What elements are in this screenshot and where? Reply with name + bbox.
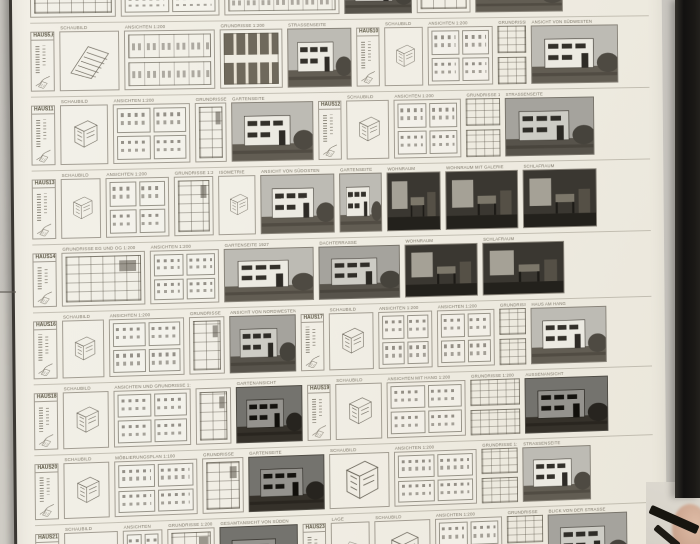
photo-content <box>523 446 590 501</box>
elevations-panel: ANSICHTEN 1:200 <box>435 510 503 544</box>
site-location-sketch-icon <box>359 70 377 84</box>
axonometric-house-icon <box>333 317 370 365</box>
axonometric-panel: SCHAUBILD <box>329 446 390 509</box>
architect-credit-text <box>323 112 335 143</box>
haus-word: HAUS <box>35 180 49 187</box>
elevation-drawing <box>431 30 459 54</box>
bw-photograph <box>339 173 382 233</box>
floor-plan-panel <box>416 0 470 13</box>
elevation-drawings <box>378 311 432 369</box>
elevation-drawing <box>172 0 216 12</box>
axonometric-drawing <box>63 462 109 519</box>
elevation-drawing <box>148 348 180 372</box>
architect-credit-text <box>361 38 373 69</box>
elevations-panel: ANSICHTEN 1:200 <box>427 20 493 85</box>
elevations-panel: ANSICHTEN 1:200 <box>393 93 461 159</box>
haus-number: 19 <box>324 385 329 392</box>
poster-row: HAUS 11 SCHAUBILD <box>31 87 650 166</box>
axonometric-house-icon <box>67 396 105 444</box>
floor-plan-panel: GRUNDRISSE <box>202 451 244 514</box>
photo-panel: GARTENSEITE <box>248 448 325 512</box>
floor-plan-drawing <box>466 98 501 126</box>
bw-photograph <box>445 170 518 230</box>
floor-plan-drawing <box>498 57 527 85</box>
haus-word: HAUS <box>35 254 49 261</box>
elevation-drawing <box>467 313 491 337</box>
elevation-drawing <box>157 463 193 487</box>
haus-number: 14,15 <box>50 254 57 261</box>
stacked-plans-panel: GRUNDRISSE <box>507 509 544 544</box>
site-location-sketch-icon <box>36 362 54 377</box>
floor-plan-drawing <box>167 527 215 544</box>
photo-content <box>230 315 295 372</box>
bw-photograph <box>318 245 400 300</box>
haus-word: HAUS <box>36 322 50 329</box>
elevation-drawing <box>429 103 458 127</box>
photo-content <box>249 455 324 511</box>
elevation-drawing <box>117 394 150 418</box>
axonometric-drawing <box>64 531 118 544</box>
poster-row: HAUS 16 SCHAUBILD <box>33 296 652 380</box>
elevation-drawings <box>113 388 191 447</box>
axonometric-house-icon <box>68 467 106 515</box>
architect-credit-text <box>38 264 50 289</box>
axonometric-panel: SCHAUBILD <box>346 94 389 160</box>
stacked-plans-panel: GRUNDRISSE 1:200 <box>481 442 518 504</box>
bw-photograph <box>525 376 609 434</box>
haus-label-panel: HAUS 14,15 <box>32 247 57 307</box>
axonometric-panel: SCHAUBILD <box>62 314 104 379</box>
bw-photograph <box>224 247 314 303</box>
elevation-drawing <box>382 341 404 365</box>
haus-label-box: HAUS 10 <box>356 27 380 86</box>
poster-row: HAUS 13 SCHAUBILD <box>32 158 651 239</box>
elevation-drawing <box>117 135 150 160</box>
elevation-drawing <box>441 339 465 363</box>
elevation-drawing <box>125 0 169 13</box>
elevation-drawing <box>467 339 491 363</box>
elevation-drawings <box>105 177 169 238</box>
photo-content <box>446 171 517 229</box>
haus-label-box: HAUS 23 <box>303 523 327 544</box>
elevation-strip <box>128 33 211 58</box>
elevation-drawings <box>120 0 219 17</box>
bw-photograph <box>531 306 607 365</box>
elevations-panel: ANSICHTEN 1:200 <box>437 303 495 367</box>
elevation-drawing <box>139 181 165 206</box>
bw-photograph <box>405 243 478 298</box>
site-location-sketch-icon <box>34 148 52 162</box>
floor-plan-panel: GRUNDRISSE EG UND OG 1:200 <box>61 245 145 307</box>
haus-label-panel: HAUS 20 <box>34 457 59 520</box>
elevation-drawings <box>437 309 495 367</box>
axonometric-drawing <box>60 104 108 165</box>
photo-panel: BLICK VON DER STRASSE <box>548 506 628 544</box>
elevation-drawing <box>127 534 142 544</box>
photo-panel: AUSSENANSICHT <box>524 370 608 434</box>
elevation-drawing <box>110 181 137 206</box>
floor-plan-drawing <box>482 477 518 504</box>
elevations-panel: ANSICHTEN 1:200 <box>394 443 477 507</box>
elevation-drawing <box>432 57 460 81</box>
haus-label-box: HAUS 13 <box>32 179 57 239</box>
axonometric-house-icon <box>66 324 101 373</box>
axonometric-drawing <box>329 452 390 509</box>
bw-photograph <box>505 96 595 156</box>
haus-word: HAUS <box>33 33 47 40</box>
photo-content <box>387 172 440 230</box>
elevation-drawings <box>428 26 494 86</box>
floor-plan-drawing <box>466 129 501 157</box>
poster-rows: HAUS 5,6,7,8,9 SCHAUBILD ANS <box>12 0 668 544</box>
bw-photograph <box>523 168 597 228</box>
plan-units <box>224 33 279 85</box>
axonometric-panel: SCHAUBILD <box>60 98 108 165</box>
elevation-drawing <box>398 479 434 502</box>
elevations-panel: ANSICHTEN 1:200 <box>113 97 191 164</box>
photo-panel: SCHLAFRAUM <box>523 162 598 228</box>
axonometric-panel: SCHAUBILD <box>61 172 101 239</box>
axonometric-drawing <box>335 383 382 440</box>
photo-content <box>506 97 594 155</box>
elevation-drawing <box>398 454 434 477</box>
floor-plan-panel: GRUNDRISSE <box>189 310 225 374</box>
architect-credit-text <box>312 395 324 423</box>
haus-word: HAUS <box>321 102 335 109</box>
haus-label-box: HAUS 11 <box>31 105 56 165</box>
photo-panel: WOHNRAUM <box>404 237 477 298</box>
bw-photograph <box>287 28 352 88</box>
elevation-drawing <box>428 409 462 433</box>
haus-number: 20 <box>52 464 58 471</box>
site-location-sketch-icon <box>321 143 339 157</box>
axonometric-house-icon <box>69 536 114 544</box>
elevation-drawings <box>123 529 163 544</box>
photo-content <box>549 513 627 544</box>
elevation-drawing <box>398 130 427 155</box>
haus-word: HAUS <box>310 385 324 392</box>
elevation-drawing <box>441 314 465 338</box>
axonometric-drawing <box>346 100 389 160</box>
architect-credit-text <box>37 190 49 221</box>
axonometric-panel: ISOMETRIE <box>218 169 256 235</box>
rowhouse-elevation-drawings <box>224 0 340 15</box>
haus-label-panel: HAUS 21,22 <box>35 527 60 544</box>
haus-number: 10 <box>373 28 378 35</box>
haus-label-panel: HAUS 18 <box>34 387 59 451</box>
architect-credit-text <box>39 404 51 432</box>
floor-plan-drawing <box>196 387 232 445</box>
photo-panel: GARTENSEITE <box>231 95 314 162</box>
elevation-drawings <box>394 99 462 159</box>
elevation-drawing <box>154 418 187 442</box>
photo-panel: SCHLAFRAUM <box>482 235 564 295</box>
site-location-sketch-icon <box>310 424 328 438</box>
elevation-drawing <box>139 208 165 233</box>
haus-word: HAUS <box>305 524 319 531</box>
elevation-drawing <box>113 322 145 346</box>
bw-photograph <box>522 445 591 502</box>
haus-word: HAUS <box>34 106 48 113</box>
elevation-drawings <box>150 249 219 304</box>
haus-label-panel: HAUS 23 <box>303 517 327 544</box>
plan-lines <box>199 391 227 440</box>
plan-lines <box>178 180 210 232</box>
elevation-drawing <box>390 385 424 409</box>
photo-panel: GARTENSEITE 1927 <box>224 241 314 302</box>
elevation-drawing <box>428 384 462 408</box>
photo-content <box>225 248 313 302</box>
photo-content <box>288 29 351 87</box>
haus-label-box: HAUS 17 <box>301 313 325 371</box>
photo-panel: ANSICHT VON SÜDOSTEN <box>260 168 335 235</box>
haus-label-panel: HAUS 17 <box>301 308 325 372</box>
architect-credit-text <box>36 116 48 147</box>
haus-label-box: HAUS 18 <box>34 393 59 451</box>
photo-panel: HAUS AM HANG <box>530 300 606 364</box>
floor-plan-panel <box>195 381 231 444</box>
black-frame-bar <box>675 0 700 498</box>
plan-lines <box>171 531 211 544</box>
photo-panel <box>475 0 563 12</box>
photo-panel: GARTENANSICHT <box>236 379 303 443</box>
elevations-panel: ANSICHTEN 1:200 <box>105 171 169 238</box>
bw-photograph <box>219 524 298 544</box>
site-location-sketch-icon <box>38 502 56 517</box>
bw-photograph <box>248 454 325 512</box>
site-location-sketch-icon <box>36 290 54 304</box>
floor-plan-drawing <box>481 448 517 475</box>
photo-content <box>406 244 477 297</box>
elevations-panel: ANSICHTEN 1:200 <box>150 243 220 304</box>
floor-plan-drawing <box>470 378 520 405</box>
elevation-drawings <box>387 380 466 438</box>
bw-photograph <box>531 24 619 84</box>
site-location-sketch-icon <box>37 433 55 448</box>
stacked-plans-panel: GRUNDRISSE 1:200 <box>470 372 520 435</box>
elevation-drawing <box>397 103 426 127</box>
floor-plan-panel: GRUNDRISSE 1:200 <box>167 521 215 544</box>
floor-plan-drawing <box>470 408 520 435</box>
site-plan-icon <box>334 526 367 544</box>
haus-number: 21,22 <box>52 534 59 541</box>
axonometric-panel: SCHAUBILD <box>64 525 118 544</box>
photo-panel: WOHNRAUM MIT GALERIE <box>445 164 518 230</box>
architect-credit-text <box>38 332 50 361</box>
photo-content <box>532 25 618 83</box>
poster-row <box>30 0 649 18</box>
haus-word: HAUS <box>359 28 373 35</box>
rowhouse-elevations-panel <box>224 0 340 15</box>
elevation-drawing <box>186 253 215 275</box>
bw-photograph <box>482 241 564 296</box>
elevation-drawing <box>118 419 151 443</box>
elevation-drawings <box>114 459 198 518</box>
floor-plan-drawing <box>189 316 225 374</box>
axonometric-house-icon <box>388 32 420 81</box>
haus-number: 23 <box>319 524 324 531</box>
haus-word: HAUS <box>304 315 318 322</box>
axonometric-panel: SCHAUBILD <box>63 456 109 519</box>
bw-photograph <box>229 314 296 373</box>
plan-lines <box>420 0 466 9</box>
elevation-drawing <box>391 411 425 435</box>
site-plan-drawing <box>59 31 119 92</box>
elevation-drawing <box>462 30 489 54</box>
haus-label-box: HAUS 14,15 <box>32 253 57 308</box>
elevation-drawing <box>117 108 150 133</box>
photo-content <box>340 174 381 232</box>
haus-label-panel: HAUS 12 <box>318 95 342 160</box>
axonometric-panel: SCHAUBILD <box>384 21 423 86</box>
photo-panel: GARTENSEITE <box>339 167 382 233</box>
weissenhof-poster: HAUS 5,6,7,8,9 SCHAUBILD ANS <box>9 0 668 544</box>
axonometric-house-icon <box>339 387 378 435</box>
elevations-panel: MÖBLIERUNGSPLAN 1:100 <box>114 453 198 518</box>
elevation-drawing <box>154 393 187 417</box>
floor-plan-drawing <box>507 515 543 543</box>
elevation-drawing <box>153 134 186 159</box>
haus-number: 17 <box>317 315 322 322</box>
floor-plan-drawing <box>30 0 116 18</box>
architect-credit-text <box>35 43 47 74</box>
haus-number: 11 <box>48 106 53 113</box>
photo-content <box>476 0 562 12</box>
photo-content <box>261 175 334 234</box>
photo-content <box>237 386 302 442</box>
axonometric-panel: SCHAUBILD <box>329 306 374 370</box>
elevation-drawing <box>470 520 498 544</box>
floor-plan-drawing <box>202 457 244 514</box>
haus-label-panel: HAUS 13 <box>32 173 57 239</box>
axonometric-house-icon <box>222 180 253 230</box>
elevation-drawing <box>113 349 145 373</box>
elevations-panel: ANSICHTEN 1:200 <box>378 305 433 369</box>
plan-lines <box>65 255 141 303</box>
elevation-drawing <box>382 315 404 339</box>
bw-photograph <box>236 385 303 443</box>
photo-panel: STRASSENSEITE <box>287 22 352 88</box>
photo-panel: DACHTERRASSE <box>318 239 400 300</box>
unit-plan-drawings <box>220 29 283 89</box>
elevation-drawing <box>154 278 183 300</box>
floor-plan-drawing <box>499 308 526 335</box>
haus-number: 5,6,7,8,9 <box>47 32 54 39</box>
haus-label-box: HAUS 20 <box>34 463 59 520</box>
elevations-panel: ANSICHTEN <box>123 523 163 544</box>
haus-number: 16 <box>50 322 56 329</box>
axonometric-drawing <box>62 319 104 378</box>
bw-photograph <box>386 171 440 231</box>
stacked-plans-panel: GRUNDRISSE <box>499 302 526 365</box>
haus-label-panel: HAUS 19 <box>307 378 331 441</box>
floor-plan-drawing <box>195 102 227 162</box>
plan-lines <box>199 107 223 159</box>
plan-lines <box>206 461 240 510</box>
photo-content <box>319 246 399 299</box>
elevation-drawing <box>407 340 429 364</box>
elevation-drawings <box>113 103 191 164</box>
rowhouse-elevation-drawings <box>124 29 215 90</box>
axonometric-drawing <box>384 27 423 86</box>
photo-panel: STRASSENSEITE <box>522 439 591 502</box>
floor-plan-drawing <box>499 338 526 365</box>
photo-content <box>345 0 411 13</box>
axonometric-house-icon <box>64 183 97 233</box>
photo-panel: STRASSENSEITE <box>505 91 595 157</box>
elevation-drawing <box>439 522 467 544</box>
haus-label-box: HAUS 5,6,7,8,9 <box>30 31 55 91</box>
architect-credit-text <box>308 534 320 544</box>
photo-panel: GESAMTANSICHT VON SÜDEN <box>219 518 298 544</box>
rowhouse-elevations-panel: ANSICHTEN 1:200 <box>124 23 215 90</box>
axonometric-panel: SCHAUBILD <box>374 513 430 544</box>
photo-content <box>220 525 297 544</box>
haus-label-panel: HAUS 16 <box>33 315 58 380</box>
haus-label-box: HAUS 19 <box>307 384 331 441</box>
photo-panel: ANSICHT VON NORDWESTEN <box>229 308 296 373</box>
bw-photograph <box>231 101 314 162</box>
site-location-sketch-icon <box>34 74 52 88</box>
elevation-drawing <box>153 107 186 132</box>
axonometric-house-icon <box>379 524 426 544</box>
photo-content <box>531 307 605 364</box>
haus-word: HAUS <box>38 534 52 542</box>
floor-plan-panel: GRUNDRISSE <box>195 97 227 163</box>
photo-panel <box>344 0 412 14</box>
axonometric-drawing <box>218 175 256 235</box>
axonometric-drawing <box>374 519 430 544</box>
elevation-drawing <box>158 488 194 512</box>
elevations-panel: ANSICHTEN 1:200 <box>109 311 185 377</box>
elevation-drawing <box>462 57 489 81</box>
haus-label-box: HAUS 16 <box>33 321 58 380</box>
elevation-strip <box>128 61 211 86</box>
elevation-drawing <box>186 277 215 299</box>
axonometric-drawing <box>329 312 374 370</box>
plan-lines <box>34 0 112 14</box>
haus-number: 13 <box>49 180 55 187</box>
axonometric-panel: SCHAUBILD <box>335 377 382 440</box>
stacked-plans-panel: GRUNDRISSE 1:200 <box>466 92 501 157</box>
architect-credit-text <box>306 325 318 354</box>
haus-label-box: HAUS 12 <box>318 101 342 160</box>
plan-lines <box>193 320 221 370</box>
site-plan-drawing <box>331 521 370 544</box>
poster-row: HAUS 14,15 GRUNDRISSE EG UND OG 1:200 AN… <box>32 230 651 307</box>
elevation-drawing <box>110 209 137 234</box>
axonometric-house-icon <box>64 110 104 160</box>
haus-word: HAUS <box>37 394 51 401</box>
haus-label-panel: HAUS 5,6,7,8,9 <box>30 25 55 91</box>
bw-photograph <box>475 0 563 12</box>
elevations-panel: ANSICHTEN MIT HANG 1:200 <box>386 374 465 438</box>
floor-plan-panel: GRUNDRISSE 1:200 <box>174 170 214 236</box>
elevation-drawings <box>394 449 477 507</box>
elevation-drawing <box>118 464 154 488</box>
elevation-drawing <box>154 254 183 276</box>
photographed-scene: HAUS 5,6,7,8,9 SCHAUBILD ANS <box>0 0 700 544</box>
site-location-sketch-icon <box>35 222 53 236</box>
wall-seam-line <box>0 291 16 293</box>
bw-photograph <box>548 512 628 544</box>
photo-content <box>525 377 607 433</box>
elevation-drawing <box>407 315 429 339</box>
elevation-drawing <box>118 489 154 513</box>
haus-label-panel: HAUS 11 <box>31 99 56 165</box>
elevation-drawing <box>437 453 473 476</box>
haus-label-panel: HAUS 10 <box>356 21 380 86</box>
